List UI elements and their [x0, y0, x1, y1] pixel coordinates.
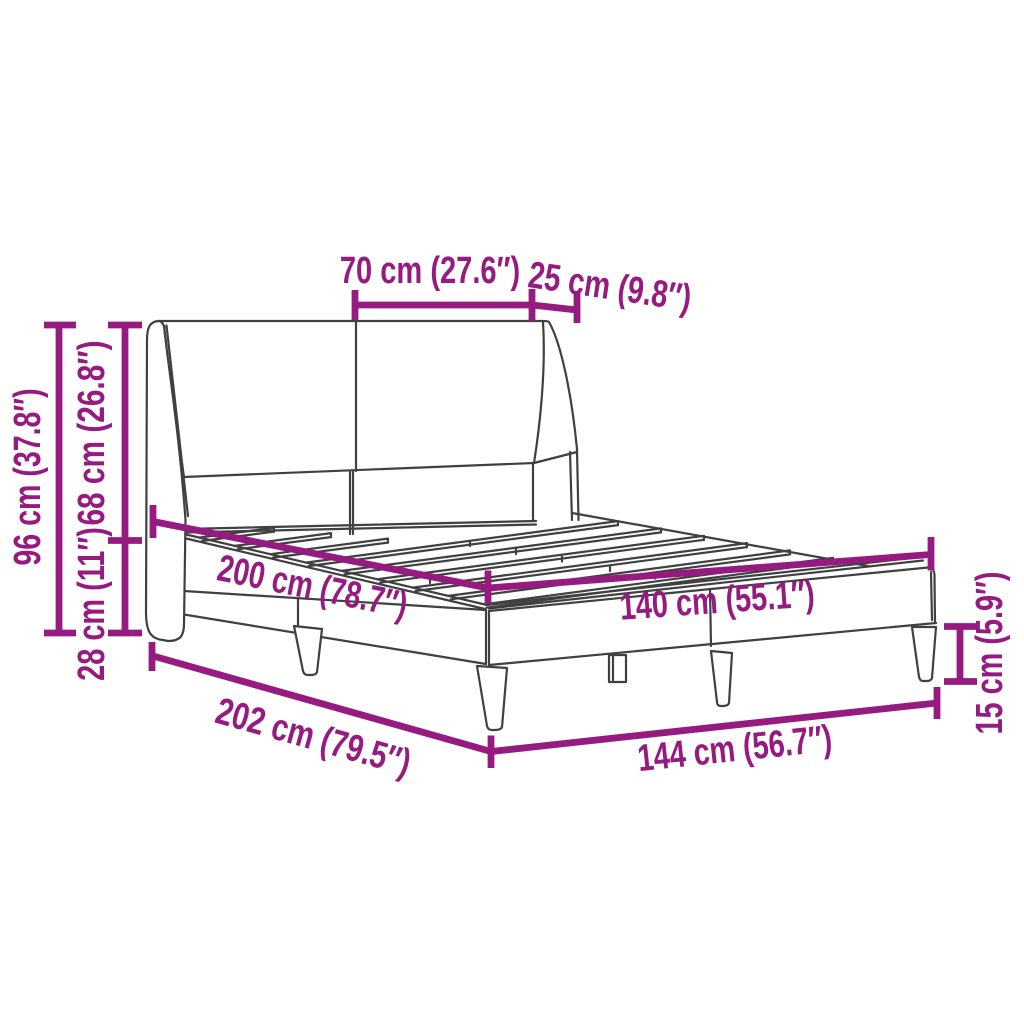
svg-text:28 cm (11″): 28 cm (11″) — [70, 527, 113, 681]
svg-text:15 cm (5.9″): 15 cm (5.9″) — [968, 571, 1011, 734]
svg-text:68 cm (26.8″): 68 cm (26.8″) — [71, 340, 113, 525]
svg-text:70 cm (27.6″): 70 cm (27.6″) — [340, 249, 520, 292]
svg-text:96 cm (37.8″): 96 cm (37.8″) — [7, 388, 49, 565]
